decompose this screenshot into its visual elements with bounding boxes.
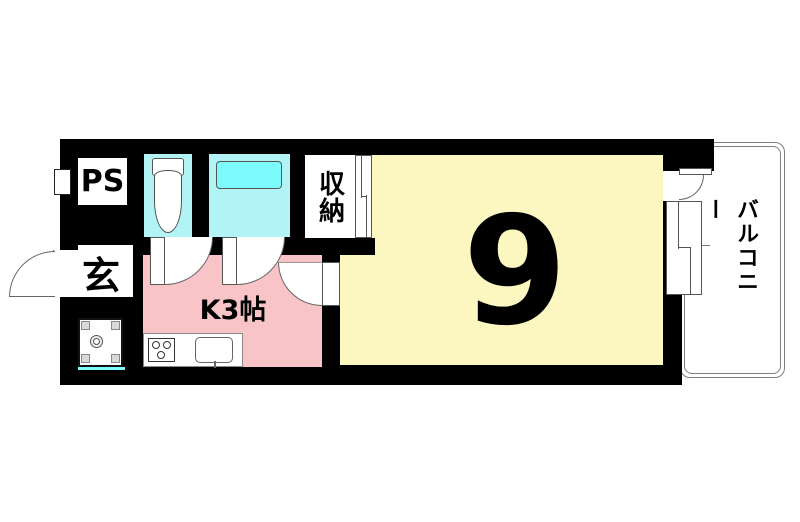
toilet-bowl-icon (154, 170, 182, 233)
pan-corner-tr (111, 321, 120, 330)
pan-drain-inner (93, 338, 100, 345)
pan-cyan-edge (78, 367, 125, 370)
balcony-window-outer-tick (702, 245, 710, 246)
meter-box (54, 169, 71, 195)
wall-below-storage (290, 238, 375, 255)
balcony-label: バルコニー (714, 198, 744, 316)
storage-sliding-door-line1 (361, 155, 362, 198)
entrance-door-swing-icon (9, 251, 55, 297)
pan-corner-tl (81, 321, 90, 330)
kitchen-label: K3帖 (190, 293, 276, 321)
pan-corner-bl (81, 354, 90, 363)
pan-corner-br (111, 354, 120, 363)
sink-faucet-mark (214, 361, 216, 368)
stove-burner-1 (152, 341, 160, 349)
bath-door-leaf (222, 237, 237, 285)
bathtub-icon (216, 161, 282, 189)
entrance-label: 玄 (80, 250, 122, 294)
balcony-window-tick (678, 247, 691, 248)
main-room-lower-left (340, 255, 372, 365)
toilet-door-leaf (150, 237, 165, 285)
storage-sliding-door-line2 (366, 195, 367, 238)
storage-label: 収納 (316, 156, 344, 237)
wall-top-right-block (682, 139, 714, 171)
balcony-sliding-window-icon (666, 201, 702, 295)
storage-sliding-door-tick (361, 196, 367, 197)
sink-icon (195, 337, 233, 363)
main-room-size-label: 9 (420, 200, 610, 345)
balcony-window-line2 (690, 247, 691, 295)
balcony-door-leaf (679, 168, 712, 175)
balcony-window-line1 (678, 201, 679, 249)
stove-burner-3 (157, 351, 165, 359)
floor-plan: バルコニー 9 K3帖 収納 PS 玄 (0, 0, 800, 522)
entrance-doorway (53, 250, 78, 297)
pipe-space-label: PS (78, 158, 127, 205)
kitchen-door-leaf (322, 262, 340, 306)
stove-burner-2 (163, 341, 171, 349)
